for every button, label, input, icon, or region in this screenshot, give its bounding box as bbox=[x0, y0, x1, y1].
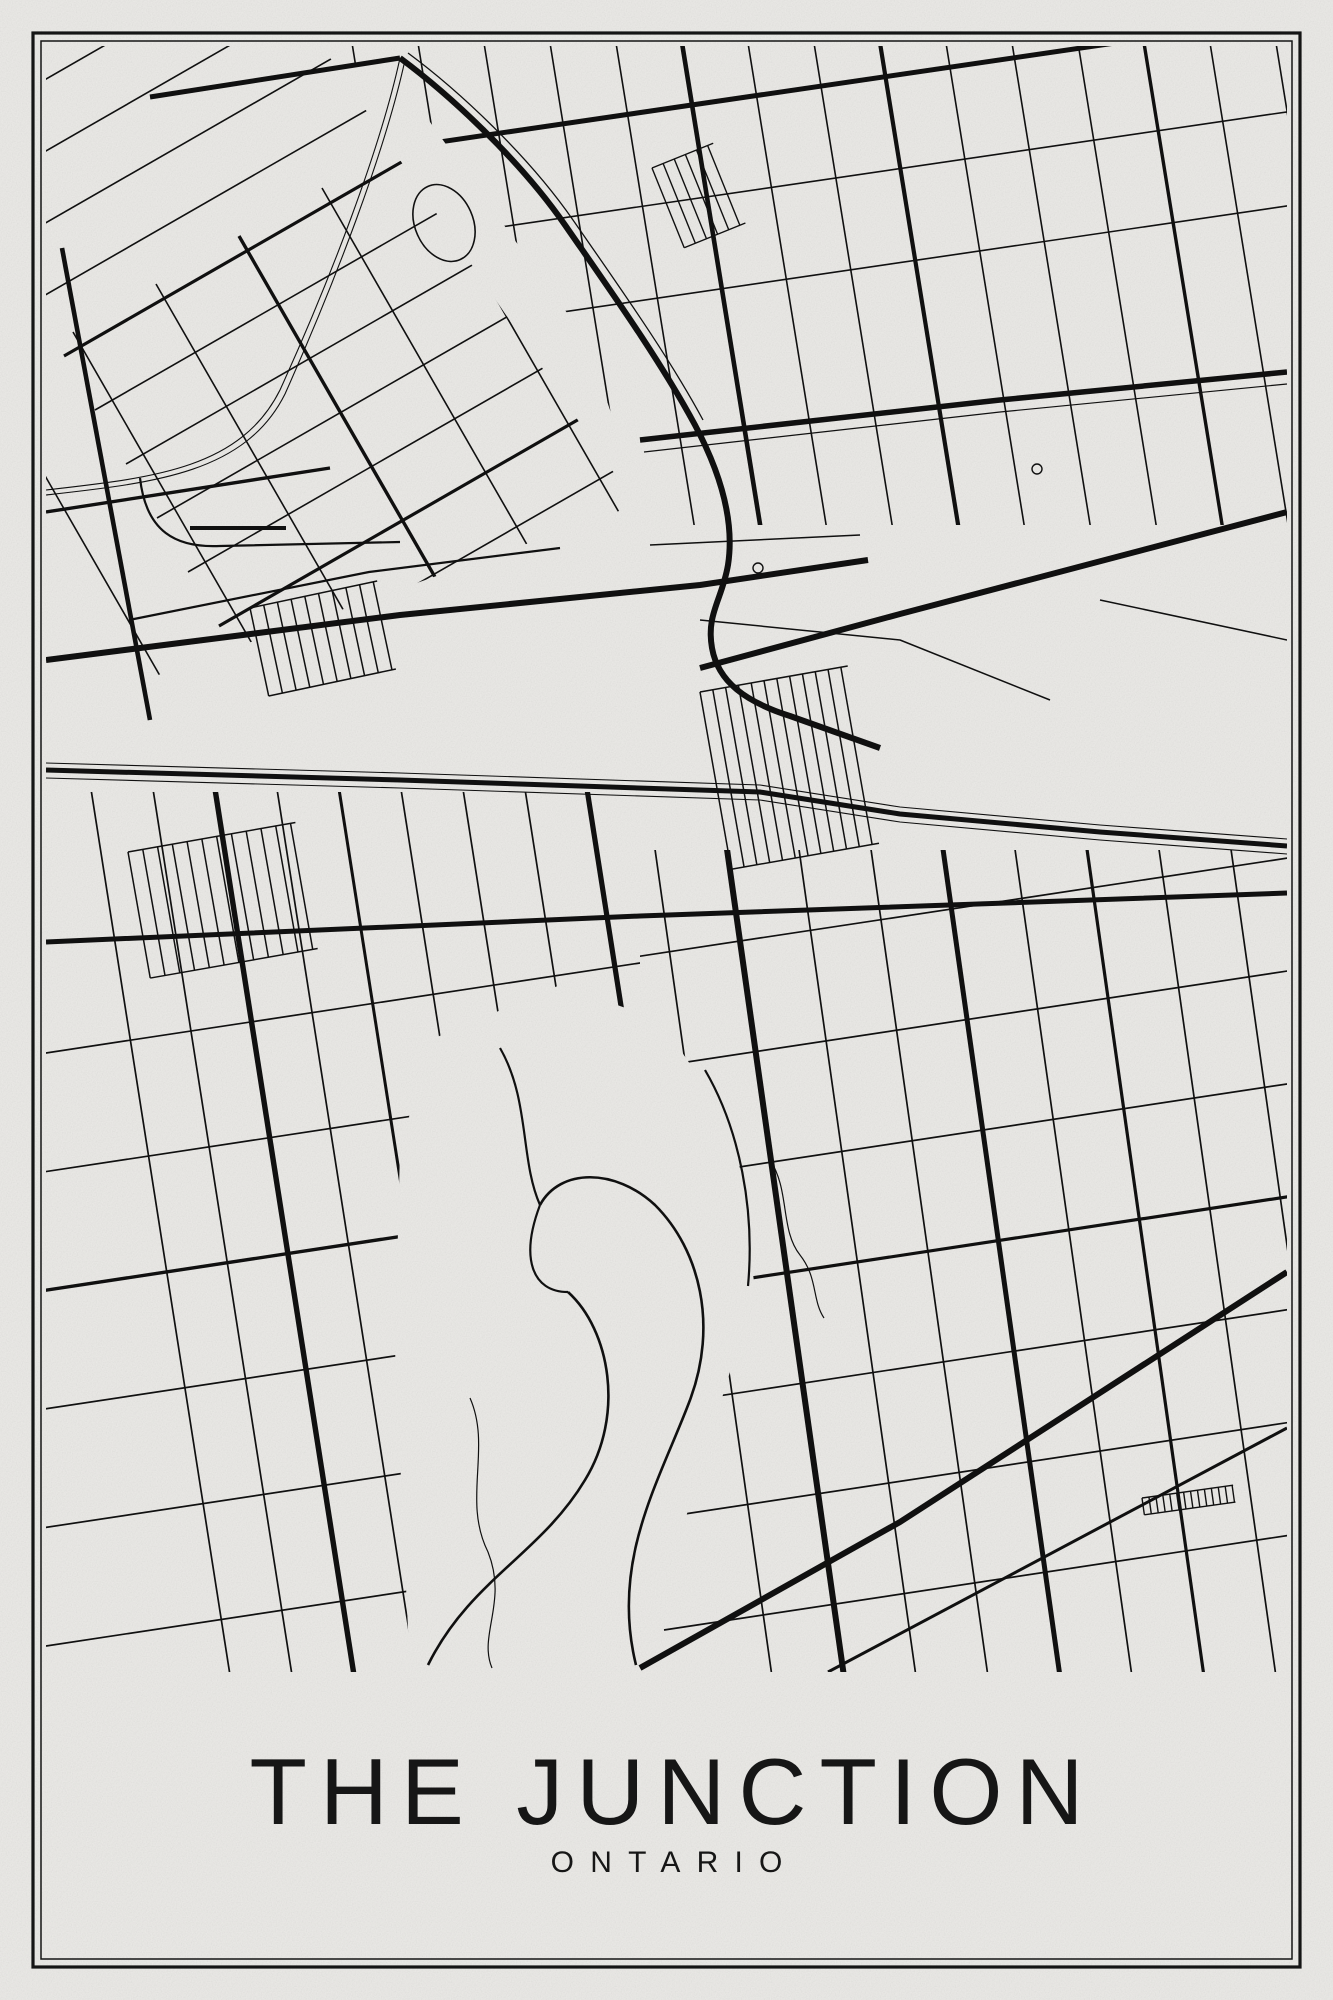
poster: THE JUNCTION ONTARIO bbox=[0, 0, 1333, 2000]
poster-title: THE JUNCTION bbox=[0, 1738, 1333, 1846]
paper-texture bbox=[0, 0, 1333, 2000]
poster-subtitle: ONTARIO bbox=[0, 1846, 1333, 1880]
map-canvas bbox=[0, 0, 1333, 2000]
